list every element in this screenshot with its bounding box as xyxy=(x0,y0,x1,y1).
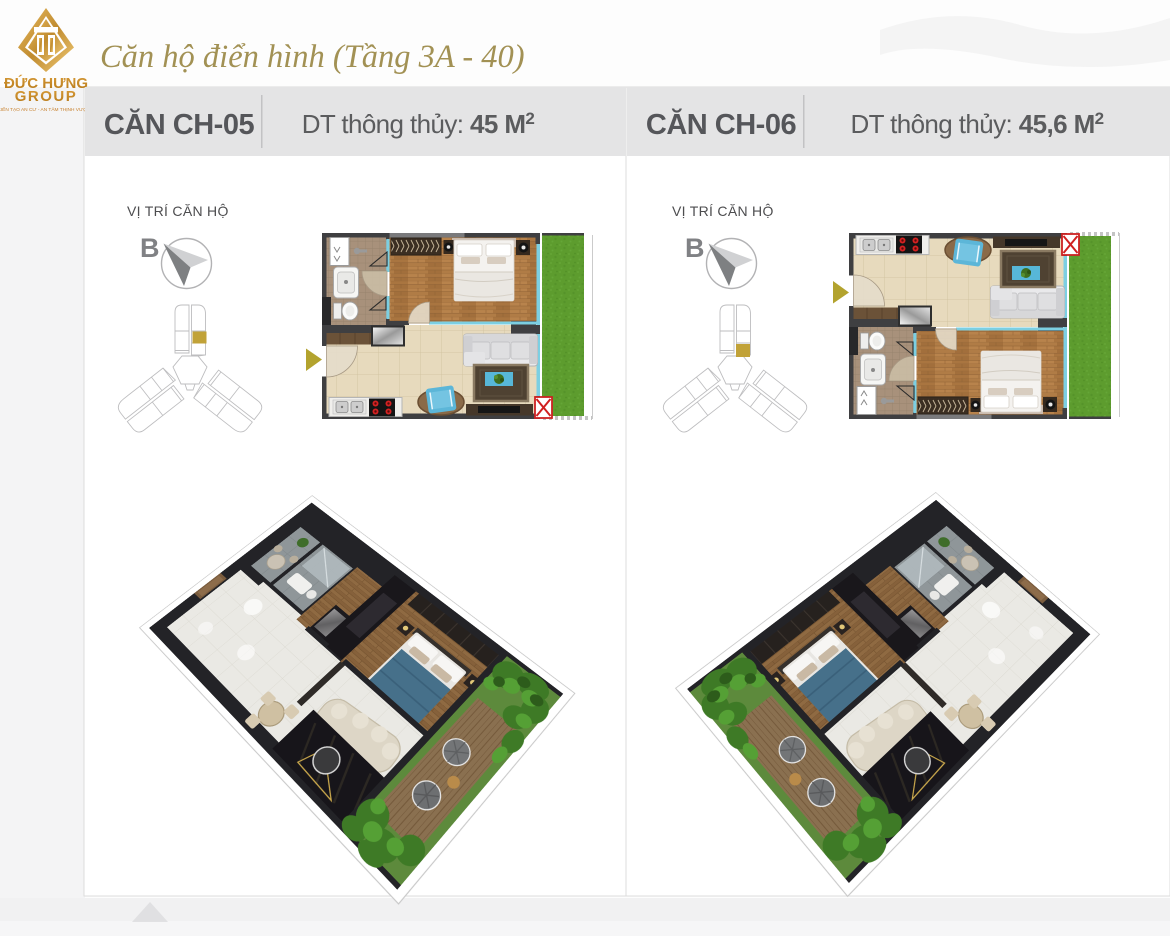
svg-text:KIẾN TẠO AN CƯ - AN TÂM THỊNH: KIẾN TẠO AN CƯ - AN TÂM THỊNH VƯỢNG xyxy=(0,106,95,113)
svg-text:VỊ TRÍ CĂN HỘ: VỊ TRÍ CĂN HỘ xyxy=(127,203,229,219)
svg-text:CĂN CH-06: CĂN CH-06 xyxy=(646,108,797,141)
svg-text:DT thông thủy: 45 M2: DT thông thủy: 45 M2 xyxy=(302,109,535,139)
svg-text:Căn hộ điển hình (Tầng 3A - 40: Căn hộ điển hình (Tầng 3A - 40) xyxy=(100,39,525,75)
svg-text:DT thông thủy: 45,6 M2: DT thông thủy: 45,6 M2 xyxy=(850,109,1103,139)
svg-text:CĂN CH-05: CĂN CH-05 xyxy=(104,108,255,141)
svg-text:B: B xyxy=(140,233,160,263)
svg-text:VỊ TRÍ CĂN HỘ: VỊ TRÍ CĂN HỘ xyxy=(672,203,774,219)
svg-text:GROUP: GROUP xyxy=(15,88,78,105)
